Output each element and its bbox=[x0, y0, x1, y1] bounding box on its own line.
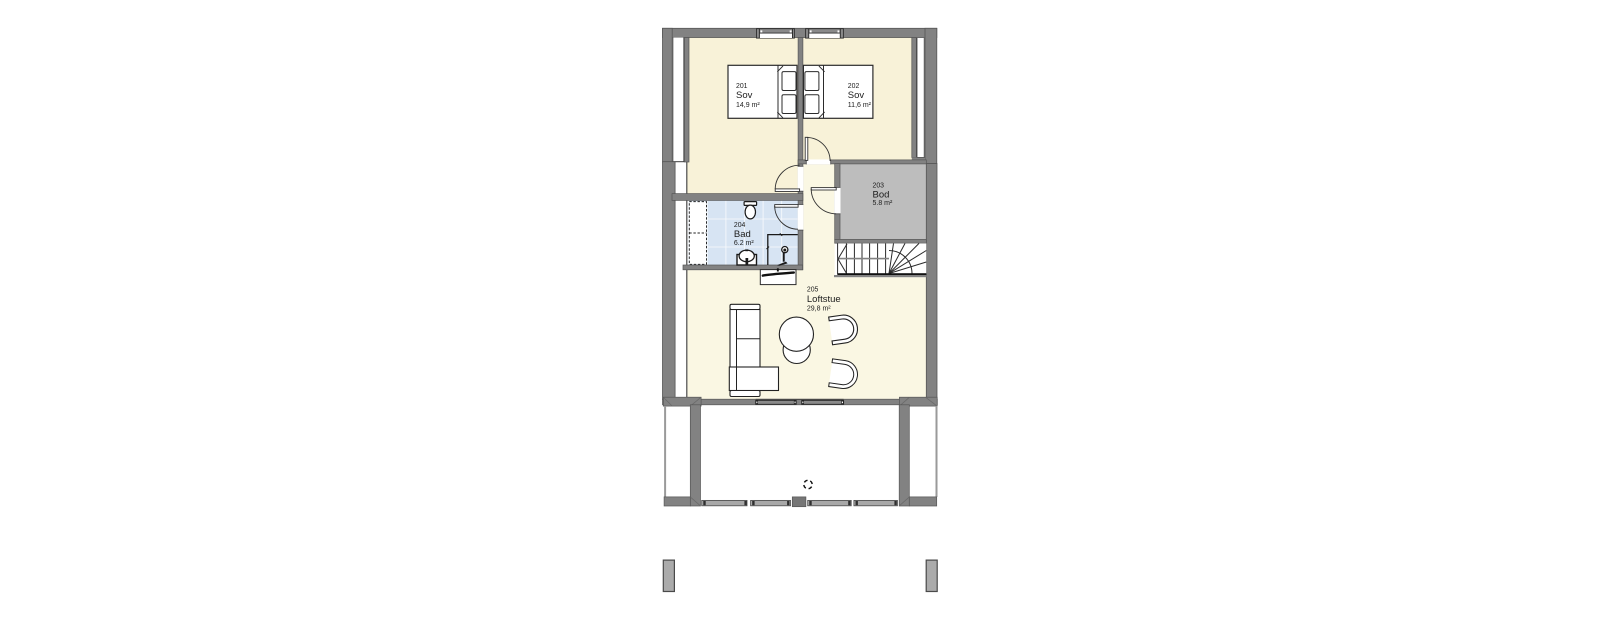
svg-text:Bod: Bod bbox=[873, 190, 890, 201]
svg-text:Sov: Sov bbox=[848, 90, 865, 101]
svg-text:201: 201 bbox=[736, 83, 748, 90]
svg-text:Sov: Sov bbox=[736, 90, 753, 101]
svg-text:5.8 m²: 5.8 m² bbox=[873, 200, 894, 207]
svg-text:204: 204 bbox=[734, 222, 746, 229]
svg-text:205: 205 bbox=[807, 287, 819, 294]
svg-text:202: 202 bbox=[848, 83, 860, 90]
svg-text:11,6 m²: 11,6 m² bbox=[848, 102, 872, 109]
svg-text:203: 203 bbox=[873, 183, 885, 190]
svg-text:Bad: Bad bbox=[734, 229, 751, 240]
svg-text:29,8 m²: 29,8 m² bbox=[807, 305, 831, 312]
svg-text:Loftstue: Loftstue bbox=[807, 294, 841, 305]
svg-text:14,9 m²: 14,9 m² bbox=[736, 102, 760, 109]
svg-text:6.2 m²: 6.2 m² bbox=[734, 240, 755, 247]
